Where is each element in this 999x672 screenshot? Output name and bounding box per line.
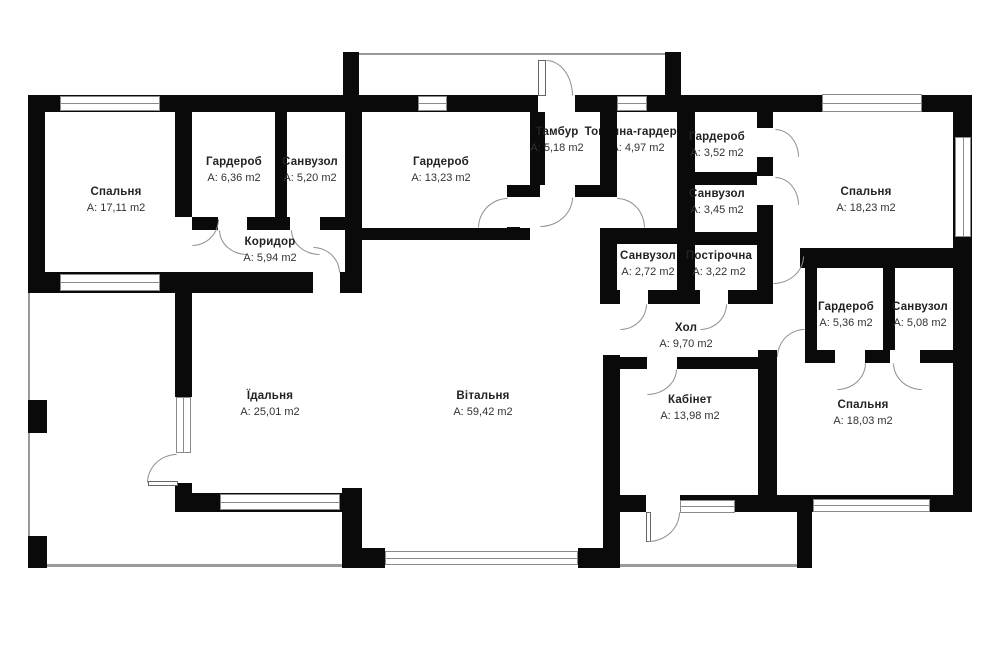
- room-label-bath-508: Санвузол A: 5,08 m2: [892, 301, 948, 330]
- wall-wardrobe352-bottom: [695, 172, 757, 185]
- opening-bedroom03-wardrobe536: [835, 350, 865, 363]
- window-dining-bottom: [220, 494, 340, 510]
- tambour-door-arc: [540, 197, 573, 227]
- porch-pillar-left: [343, 52, 359, 95]
- cabinet-terrace-door-arc: [648, 512, 680, 542]
- opening-cabinet-terrace: [646, 495, 680, 512]
- window-bedroom23-top: [822, 94, 922, 112]
- room-label-dining-2501: Їдальня A: 25,01 m2: [240, 390, 299, 419]
- opening-wardrobe1323: [507, 197, 520, 227]
- wall-bath520-east: [345, 112, 362, 293]
- window-porch-right: [617, 96, 647, 111]
- opening-hall-boiler: [600, 197, 617, 228]
- opening-bedroom23-wardrobe352: [757, 128, 773, 157]
- cabinet-door-arc: [647, 369, 677, 395]
- bath345-door-arc: [775, 177, 799, 205]
- window-wardrobe1323-top: [418, 96, 447, 111]
- opening-hall-bath272: [620, 290, 648, 304]
- room-label-bedroom-1711: Спальня A: 17,11 m2: [87, 186, 146, 215]
- porch-pillar-right: [665, 52, 681, 95]
- wardrobe536-door-arc: [837, 363, 866, 390]
- floor-plan: Спальня A: 17,11 m2 Гардероб A: 6,36 m2 …: [0, 0, 999, 672]
- wall-living-bottom-b: [578, 548, 620, 568]
- wardrobe1323-door-arc: [478, 198, 508, 228]
- wall-dining-west-a: [175, 273, 192, 397]
- corridor-dining-door-arc: [313, 247, 340, 273]
- wardrobe352-door-arc: [775, 129, 799, 157]
- room-label-bath-345: Санвузол A: 3,45 m2: [689, 188, 745, 217]
- room-label-wardrobe-1323: Гардероб A: 13,23 m2: [411, 156, 470, 185]
- wall-bedroom23-bottom: [800, 248, 953, 268]
- bedroom23-door-arc: [773, 256, 804, 284]
- opening-hall-cabinet: [647, 357, 677, 369]
- opening-corridor-wardrobe: [218, 217, 247, 230]
- window-living-bottom: [385, 551, 578, 565]
- window-bedroom03-bottom: [813, 499, 930, 512]
- window-bedroom23-right: [955, 137, 971, 237]
- bath508-door-arc: [893, 363, 922, 390]
- wall-bedroom03-west: [758, 350, 777, 495]
- opening-bedroom03-bath508: [890, 350, 920, 363]
- window-cabinet-bottom: [680, 500, 735, 513]
- bedroom1-door-arc: [192, 219, 219, 246]
- porch-edge-line: [358, 53, 666, 55]
- terrace-bottom-edge-line: [28, 564, 364, 567]
- opening-corridor-bath: [290, 217, 320, 230]
- wall-back-terrace-east: [797, 512, 812, 568]
- room-label-tambour-518: Тамбур A: 5,18 m2: [530, 126, 583, 155]
- room-label-bath-520: Санвузол A: 5,20 m2: [282, 156, 338, 185]
- room-label-wardrobe-352: Гардероб A: 3,52 m2: [689, 131, 745, 160]
- entrance-door-arc: [546, 60, 573, 96]
- boiler-door-arc: [617, 198, 645, 228]
- room-label-bath-272: Санвузол A: 2,72 m2: [620, 250, 676, 279]
- room-label-living-5942: Вітальня A: 59,42 m2: [453, 390, 512, 419]
- opening-tambour-hall: [540, 185, 575, 197]
- room-label-bedroom-1803: Спальня A: 18,03 m2: [833, 399, 892, 428]
- wall-hall-notch-east: [805, 248, 817, 360]
- wall-dining-west-b: [175, 483, 192, 512]
- room-label-wardrobe-536: Гардероб A: 5,36 m2: [818, 301, 874, 330]
- wall-bath345-bottom: [695, 232, 758, 245]
- opening-entrance: [538, 95, 575, 112]
- room-label-corridor-594: Коридор A: 5,94 m2: [243, 236, 296, 265]
- bath272-door-arc: [620, 304, 647, 330]
- terrace-pillar-lower: [28, 536, 47, 568]
- window-dining-west: [176, 397, 191, 453]
- entrance-door-leaf: [538, 60, 546, 96]
- bedroom03-entry-door-arc: [777, 329, 805, 357]
- terrace-pillar-upper: [28, 400, 47, 433]
- opening-hall-laundry: [700, 290, 728, 304]
- wall-cabinet-west: [603, 355, 620, 568]
- opening-bedroom23-bath345: [757, 176, 773, 205]
- wall-wardrobe536-bottom: [805, 350, 953, 363]
- wall-left: [28, 95, 45, 293]
- wall-hall-bottom: [620, 357, 758, 369]
- room-label-laundry-322: Постірочна A: 3,22 m2: [686, 250, 752, 279]
- opening-corridor-dining: [313, 272, 340, 293]
- dining-terrace-door-arc: [147, 454, 177, 483]
- room-label-bedroom-1823: Спальня A: 18,23 m2: [836, 186, 895, 215]
- window-bedroom1-top: [60, 96, 160, 111]
- wall-boiler-bottom: [617, 228, 677, 244]
- back-terrace-bottom-edge-line: [620, 564, 812, 567]
- room-label-cabinet-1398: Кабінет A: 13,98 m2: [660, 394, 719, 423]
- room-label-wardrobe-636: Гардероб A: 6,36 m2: [206, 156, 262, 185]
- wall-bedroom1-east: [175, 112, 192, 217]
- window-bedroom1-bottom: [60, 274, 160, 291]
- wall-wardrobe1323-bottom: [355, 228, 530, 240]
- room-label-hall-970: Хол A: 9,70 m2: [659, 322, 712, 351]
